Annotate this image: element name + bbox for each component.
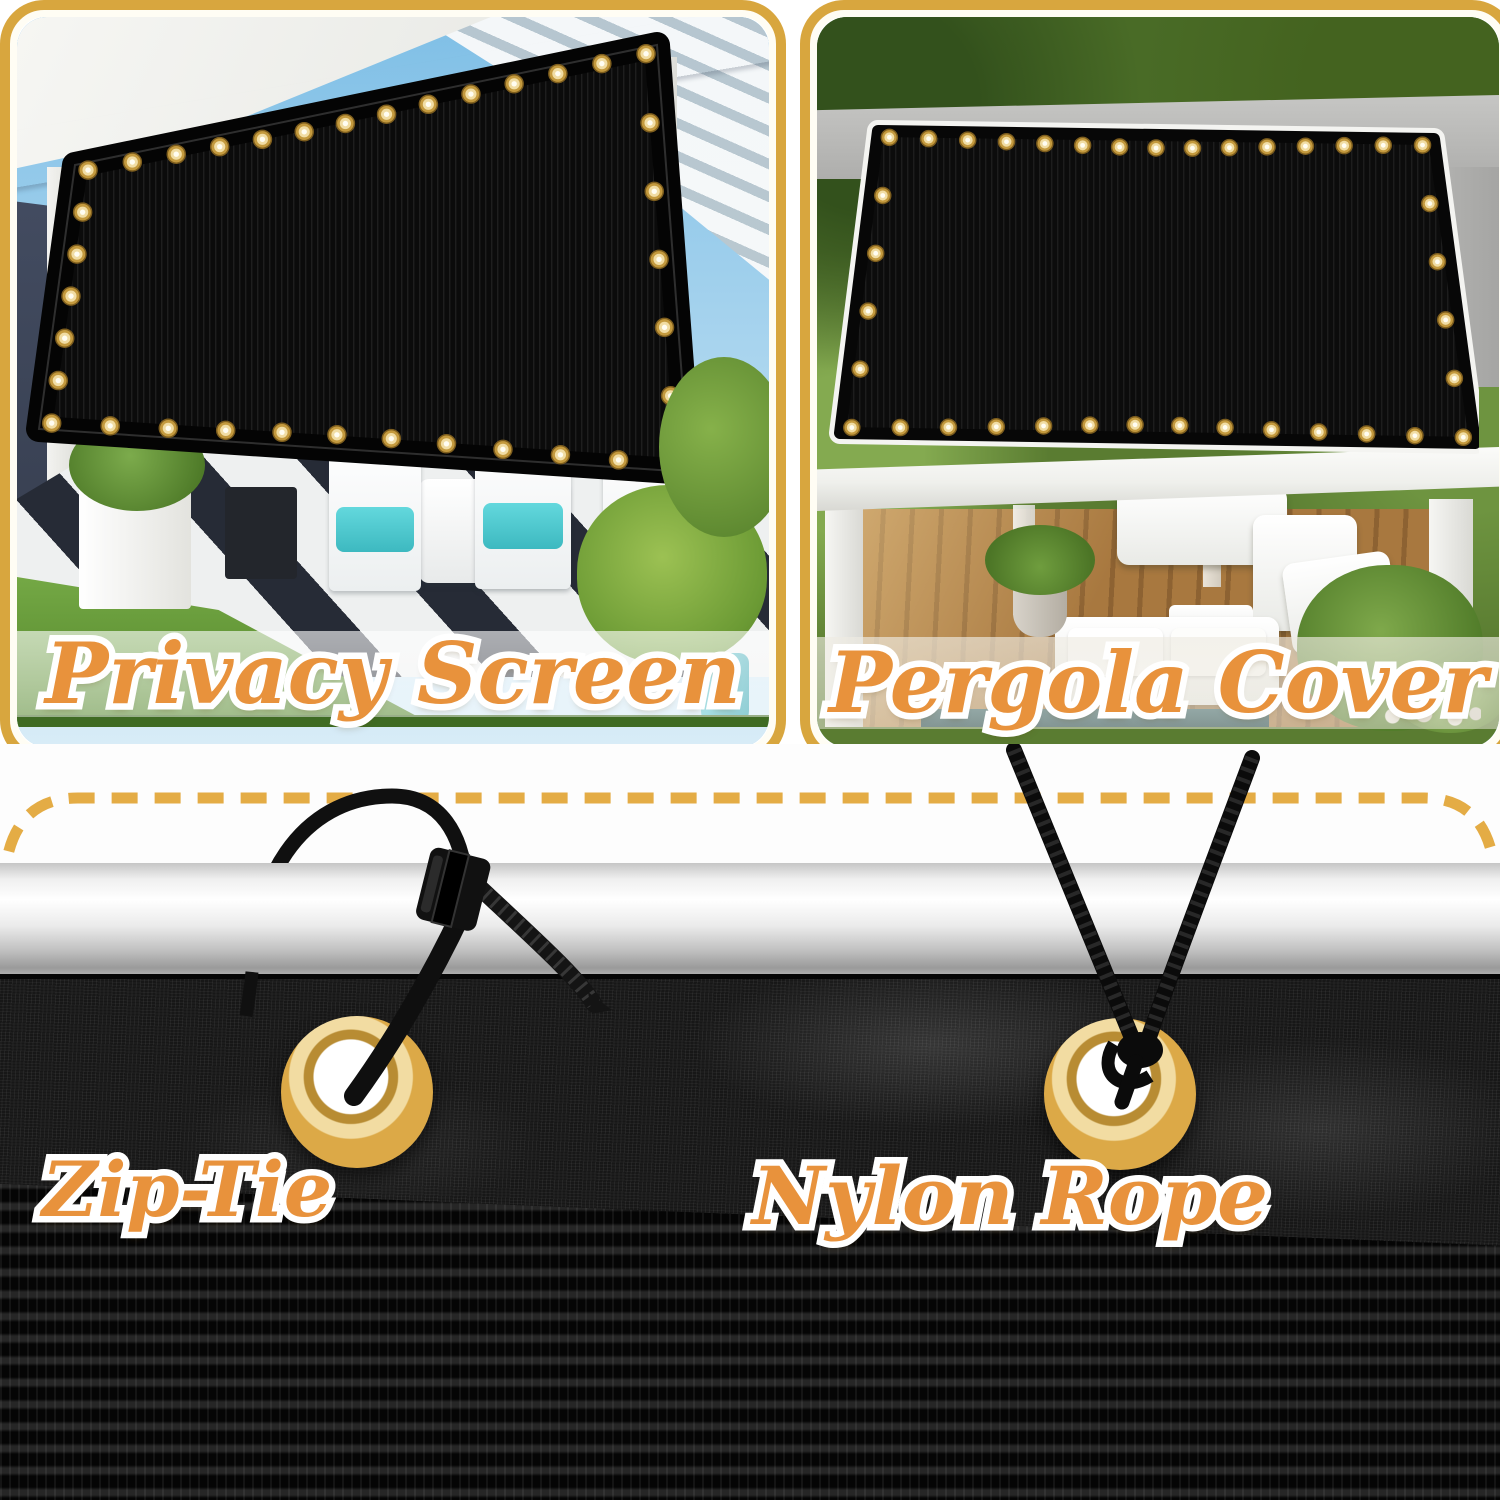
fastener-layer [0, 744, 1500, 1500]
nylon-rope-label: Nylon Rope Nylon Rope [752, 1156, 1268, 1236]
caption-band: Privacy Screen Privacy Screen [17, 631, 769, 717]
zip-tie-label: Zip-Tie Zip-Tie [42, 1152, 332, 1228]
caption-band: Pergola Cover Pergola Cover [817, 637, 1499, 729]
privacy-screen-photo: Privacy Screen Privacy Screen [17, 17, 769, 747]
pergola-cover-panel: Pergola Cover Pergola Cover [800, 0, 1500, 764]
screen-hem [39, 45, 689, 472]
black-mesh-roof [817, 17, 1479, 727]
mesh-panel [840, 131, 1475, 443]
caption-text: Pergola Cover [829, 633, 1487, 732]
privacy-screen-panel: Privacy Screen Privacy Screen [0, 0, 786, 764]
nylon-rope-illustration [1014, 750, 1252, 1102]
privacy-screen-caption: Privacy Screen Privacy Screen [45, 632, 741, 716]
installation-detail-section: Zip-Tie Zip-Tie Nylon Rope Nylon Rope [0, 744, 1500, 1500]
label-text: Nylon Rope [752, 1149, 1268, 1243]
caption-text: Privacy Screen [45, 624, 741, 723]
zip-tie-illustration [246, 846, 612, 1096]
pergola-cover-photo: Pergola Cover Pergola Cover [817, 17, 1499, 747]
product-infographic: Privacy Screen Privacy Screen [0, 0, 1500, 1500]
pergola-cover-caption: Pergola Cover Pergola Cover [829, 641, 1487, 725]
label-text: Zip-Tie [42, 1145, 332, 1234]
